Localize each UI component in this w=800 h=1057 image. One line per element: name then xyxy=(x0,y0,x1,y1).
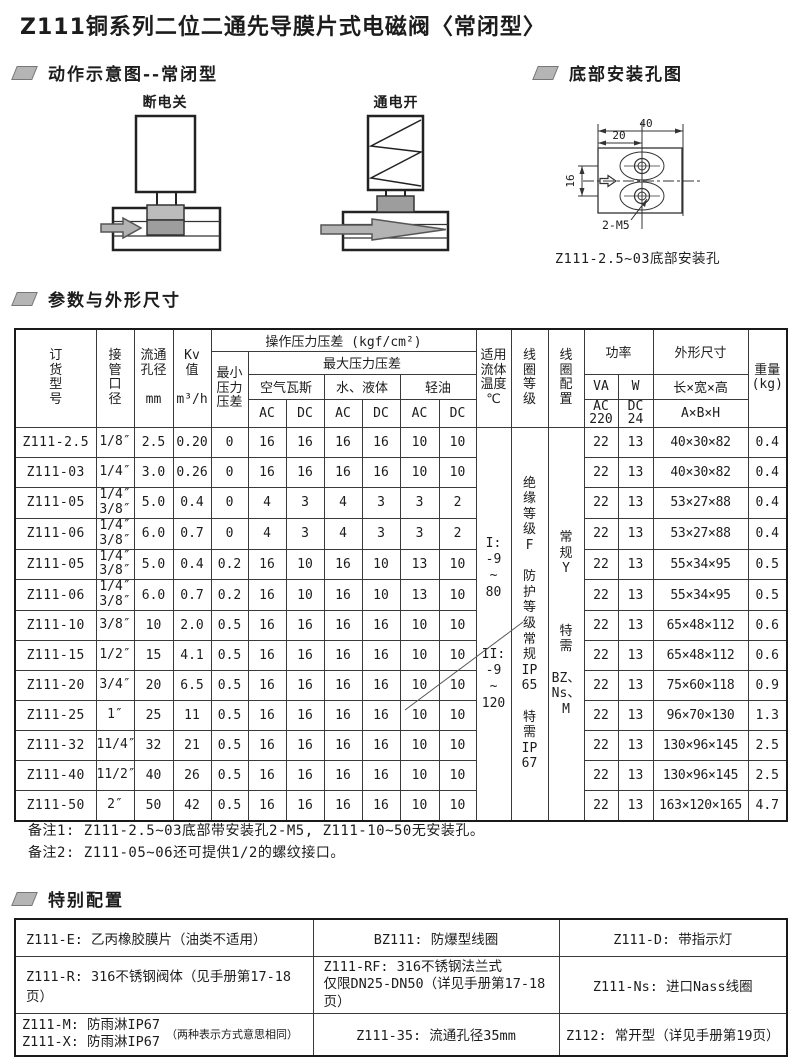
cell-oil-dc: 2 xyxy=(439,518,476,549)
col-header-ac: AC xyxy=(248,399,286,427)
section-marker-icon xyxy=(11,292,38,306)
cell-weight: 0.9 xyxy=(748,671,787,701)
special-cell-z111m-text: Z111-M: 防雨淋IP67 Z111-X: 防雨淋IP67 xyxy=(22,1017,160,1052)
cell-air-dc: 16 xyxy=(286,671,324,701)
cell-water-dc: 16 xyxy=(362,731,400,761)
cell-bore: 3.0 xyxy=(134,457,173,487)
cell-port: 1″ xyxy=(96,701,134,731)
cell-oil-dc: 10 xyxy=(439,611,476,641)
cell-oil-ac: 10 xyxy=(400,701,439,731)
cell-min-dp: 0 xyxy=(211,487,248,518)
dim-40-label: 40 xyxy=(639,117,652,130)
col-header-power: 功率 xyxy=(584,329,653,374)
cell-min-dp: 0.5 xyxy=(211,671,248,701)
cell-coil-config: 常 规 Y 特 需 BZ、 Ns、 M xyxy=(548,427,584,821)
spec-row: Z111-151/2″154.10.5161616161010221365×48… xyxy=(15,641,787,671)
coil-deenergized xyxy=(136,116,195,192)
cell-dimensions: 65×48×112 xyxy=(653,611,748,641)
cell-power-va: 22 xyxy=(584,611,618,641)
cell-model: Z111-05 xyxy=(15,487,96,518)
cell-oil-ac: 10 xyxy=(400,791,439,821)
cell-water-dc: 3 xyxy=(362,487,400,518)
cell-weight: 2.5 xyxy=(748,731,787,761)
cell-min-dp: 0 xyxy=(211,518,248,549)
cell-power-w: 13 xyxy=(618,427,653,457)
cell-oil-dc: 10 xyxy=(439,580,476,611)
cell-water-dc: 16 xyxy=(362,457,400,487)
cell-power-va: 22 xyxy=(584,549,618,580)
spec-table: 订 货 型 号 接 管 口 径 流通 孔径 mm Kv 值 m³/h 操作压力压… xyxy=(14,328,788,822)
cell-bore: 5.0 xyxy=(134,487,173,518)
section-marker-icon xyxy=(532,66,559,80)
special-row: Z111-R: 316不锈钢阀体（见手册第17-18页） Z111-RF: 31… xyxy=(15,956,787,1014)
valve-action-diagram xyxy=(90,108,460,258)
cell-bore: 50 xyxy=(134,791,173,821)
spec-row: Z111-2.51/8″2.50.200161616161010I: -9 ~ … xyxy=(15,427,787,457)
special-cell-z111d: Z111-D: 带指示灯 xyxy=(559,919,787,956)
cell-model: Z111-32 xyxy=(15,731,96,761)
cell-air-dc: 16 xyxy=(286,761,324,791)
special-cell-z11135: Z111-35: 流通孔径35mm xyxy=(313,1014,559,1056)
cell-water-dc: 3 xyxy=(362,518,400,549)
section-title: 底部安装孔图 xyxy=(569,60,683,85)
page-title: Z111铜系列二位二通先导膜片式电磁阀〈常闭型〉 xyxy=(20,9,546,41)
cell-power-va: 22 xyxy=(584,671,618,701)
cell-model: Z111-50 xyxy=(15,791,96,821)
cell-power-w: 13 xyxy=(618,731,653,761)
cell-water-dc: 16 xyxy=(362,701,400,731)
special-cell-z112: Z112: 常开型（详见手册第19页） xyxy=(559,1014,787,1056)
cell-power-w: 13 xyxy=(618,701,653,731)
cell-power-va: 22 xyxy=(584,641,618,671)
cell-model: Z111-03 xyxy=(15,457,96,487)
cell-oil-dc: 10 xyxy=(439,761,476,791)
spec-row: Z111-051/4″ 3/8″5.00.40434332221353×27×8… xyxy=(15,487,787,518)
special-cell-z111m: Z111-M: 防雨淋IP67 Z111-X: 防雨淋IP67 （两种表示方式意… xyxy=(15,1014,313,1056)
cell-model: Z111-10 xyxy=(15,611,96,641)
cell-power-w: 13 xyxy=(618,580,653,611)
col-header-min-dp: 最小 压力 压差 xyxy=(211,351,248,427)
col-header-weight: 重量 (kg) xyxy=(748,329,787,427)
cell-oil-dc: 10 xyxy=(439,701,476,731)
temp-range-2: II: -9 ~ 120 xyxy=(477,647,511,712)
cell-kv: 26 xyxy=(173,761,211,791)
section-title: 动作示意图--常闭型 xyxy=(48,60,218,85)
cell-water-ac: 16 xyxy=(324,731,362,761)
plunger-seated-top xyxy=(147,205,184,220)
cell-weight: 0.6 xyxy=(748,641,787,671)
cell-air-dc: 16 xyxy=(286,641,324,671)
cell-air-dc: 16 xyxy=(286,427,324,457)
cell-oil-ac: 3 xyxy=(400,487,439,518)
cell-water-ac: 16 xyxy=(324,791,362,821)
cell-air-dc: 16 xyxy=(286,611,324,641)
cell-port: 1/4″ 3/8″ xyxy=(96,518,134,549)
col-header-water-liquid: 水、液体 xyxy=(324,374,400,399)
special-cell-z111e: Z111-E: 乙丙橡胶膜片（油类不适用） xyxy=(15,919,313,956)
spec-row: Z111-061/4″ 3/8″6.00.70434332221353×27×8… xyxy=(15,518,787,549)
cell-water-ac: 16 xyxy=(324,549,362,580)
cell-water-ac: 16 xyxy=(324,761,362,791)
cell-kv: 0.4 xyxy=(173,549,211,580)
cell-water-ac: 4 xyxy=(324,518,362,549)
spec-row: Z111-051/4″ 3/8″5.00.40.2161016101310221… xyxy=(15,549,787,580)
cell-oil-dc: 10 xyxy=(439,791,476,821)
cell-weight: 0.4 xyxy=(748,427,787,457)
cell-oil-ac: 10 xyxy=(400,761,439,791)
cell-weight: 0.6 xyxy=(748,611,787,641)
cell-bore: 6.0 xyxy=(134,580,173,611)
col-header-dc24: DC 24 xyxy=(618,399,653,427)
cell-min-dp: 0 xyxy=(211,427,248,457)
cell-dimensions: 163×120×165 xyxy=(653,791,748,821)
cell-power-w: 13 xyxy=(618,549,653,580)
col-header-model: 订 货 型 号 xyxy=(15,329,96,427)
cell-dimensions: 55×34×95 xyxy=(653,580,748,611)
cell-min-dp: 0.2 xyxy=(211,549,248,580)
cell-dimensions: 96×70×130 xyxy=(653,701,748,731)
cell-air-ac: 16 xyxy=(248,671,286,701)
spec-row: Z111-4011/2″40260.51616161610102213130×9… xyxy=(15,761,787,791)
cell-power-va: 22 xyxy=(584,761,618,791)
col-header-kv: Kv 值 m³/h xyxy=(173,329,211,427)
cell-kv: 0.7 xyxy=(173,580,211,611)
cell-air-ac: 16 xyxy=(248,611,286,641)
cell-power-va: 22 xyxy=(584,701,618,731)
cell-air-ac: 16 xyxy=(248,580,286,611)
cell-dimensions: 130×96×145 xyxy=(653,731,748,761)
cell-kv: 6.5 xyxy=(173,671,211,701)
thread-label: 2-M5 xyxy=(602,218,630,232)
cell-air-ac: 16 xyxy=(248,731,286,761)
cell-water-dc: 16 xyxy=(362,791,400,821)
temp-range-1: I: -9 ~ 80 xyxy=(477,536,511,601)
col-header-va: VA xyxy=(584,374,618,399)
cell-model: Z111-05 xyxy=(15,549,96,580)
cell-power-va: 22 xyxy=(584,731,618,761)
cell-water-ac: 16 xyxy=(324,671,362,701)
cell-weight: 0.4 xyxy=(748,518,787,549)
cell-oil-dc: 10 xyxy=(439,457,476,487)
special-cell-z111rf: Z111-RF: 316不锈钢法兰式 仅限DN25-DN50（详见手册第17-1… xyxy=(313,956,559,1014)
special-cell-z111r: Z111-R: 316不锈钢阀体（见手册第17-18页） xyxy=(15,956,313,1014)
cell-port: 1/8″ xyxy=(96,427,134,457)
cell-port: 1/2″ xyxy=(96,641,134,671)
cell-oil-ac: 3 xyxy=(400,518,439,549)
cell-weight: 1.3 xyxy=(748,701,787,731)
cell-dimensions: 40×30×82 xyxy=(653,457,748,487)
spec-row: Z111-251″25110.5161616161010221396×70×13… xyxy=(15,701,787,731)
cell-water-dc: 16 xyxy=(362,641,400,671)
cell-port: 1/4″ 3/8″ xyxy=(96,487,134,518)
cell-power-va: 22 xyxy=(584,457,618,487)
cell-air-dc: 16 xyxy=(286,701,324,731)
cell-water-dc: 16 xyxy=(362,611,400,641)
cell-bore: 40 xyxy=(134,761,173,791)
cell-air-dc: 16 xyxy=(286,791,324,821)
note-1: 备注1: Z111-2.5~03底部带安装孔2-M5, Z111-10~50无安… xyxy=(28,820,484,840)
cell-model: Z111-06 xyxy=(15,518,96,549)
cell-oil-ac: 10 xyxy=(400,427,439,457)
col-header-abh: A×B×H xyxy=(653,399,748,427)
cell-kv: 0.20 xyxy=(173,427,211,457)
cell-model: Z111-06 xyxy=(15,580,96,611)
cell-kv: 11 xyxy=(173,701,211,731)
cell-water-dc: 10 xyxy=(362,580,400,611)
col-header-port: 接 管 口 径 xyxy=(96,329,134,427)
cell-port: 11/2″ xyxy=(96,761,134,791)
cell-min-dp: 0.5 xyxy=(211,791,248,821)
cell-air-dc: 10 xyxy=(286,549,324,580)
cell-power-va: 22 xyxy=(584,427,618,457)
cell-water-dc: 16 xyxy=(362,671,400,701)
cell-min-dp: 0.5 xyxy=(211,761,248,791)
col-header-coil-config: 线 圈 配 置 xyxy=(548,329,584,427)
cell-port: 3/4″ xyxy=(96,671,134,701)
cell-model: Z111-15 xyxy=(15,641,96,671)
mounting-caption: Z111-2.5~03底部安装孔 xyxy=(555,247,720,267)
cell-oil-dc: 10 xyxy=(439,427,476,457)
cell-oil-ac: 13 xyxy=(400,549,439,580)
cell-oil-dc: 10 xyxy=(439,549,476,580)
cell-kv: 4.1 xyxy=(173,641,211,671)
spec-row: Z111-203/4″206.50.5161616161010221375×60… xyxy=(15,671,787,701)
cell-water-dc: 10 xyxy=(362,549,400,580)
section-title: 参数与外形尺寸 xyxy=(48,286,181,311)
cell-air-dc: 3 xyxy=(286,487,324,518)
cell-dimensions: 130×96×145 xyxy=(653,761,748,791)
cell-air-ac: 16 xyxy=(248,701,286,731)
col-header-bore: 流通 孔径 mm xyxy=(134,329,173,427)
col-header-dc: DC xyxy=(286,399,324,427)
col-header-w: W xyxy=(618,374,653,399)
cell-bore: 2.5 xyxy=(134,427,173,457)
special-config-container: Z111-E: 乙丙橡胶膜片（油类不适用） BZ111: 防爆型线圈 Z111-… xyxy=(14,918,786,1057)
cell-oil-ac: 10 xyxy=(400,671,439,701)
spec-row: Z111-103/8″102.00.5161616161010221365×48… xyxy=(15,611,787,641)
cell-air-ac: 4 xyxy=(248,487,286,518)
cell-water-ac: 16 xyxy=(324,701,362,731)
cell-port: 3/8″ xyxy=(96,611,134,641)
cell-weight: 0.5 xyxy=(748,549,787,580)
cell-water-ac: 16 xyxy=(324,580,362,611)
cell-weight: 2.5 xyxy=(748,761,787,791)
cell-bore: 10 xyxy=(134,611,173,641)
cell-air-ac: 16 xyxy=(248,641,286,671)
cell-min-dp: 0.2 xyxy=(211,580,248,611)
cell-model: Z111-2.5 xyxy=(15,427,96,457)
cell-kv: 0.26 xyxy=(173,457,211,487)
cell-oil-dc: 10 xyxy=(439,641,476,671)
cell-water-ac: 16 xyxy=(324,611,362,641)
cell-power-w: 13 xyxy=(618,611,653,641)
cell-power-va: 22 xyxy=(584,580,618,611)
cell-coil-grade: 绝 缘 等 级 F 防 护 等 级 常 规 IP 65 特 需 IP 67 xyxy=(511,427,548,821)
col-header-max-dp: 最大压力压差 xyxy=(248,351,476,374)
cell-oil-ac: 10 xyxy=(400,731,439,761)
cell-fluid-temp-ranges: I: -9 ~ 80II: -9 ~ 120 xyxy=(476,427,511,821)
cell-air-dc: 10 xyxy=(286,580,324,611)
special-row: Z111-E: 乙丙橡胶膜片（油类不适用） BZ111: 防爆型线圈 Z111-… xyxy=(15,919,787,956)
cell-power-va: 22 xyxy=(584,791,618,821)
col-header-light-oil: 轻油 xyxy=(400,374,476,399)
cell-air-dc: 16 xyxy=(286,457,324,487)
section-title: 特别配置 xyxy=(48,886,124,911)
cell-bore: 25 xyxy=(134,701,173,731)
cell-air-ac: 16 xyxy=(248,427,286,457)
cell-water-ac: 16 xyxy=(324,457,362,487)
cell-bore: 15 xyxy=(134,641,173,671)
cell-port: 1/4″ xyxy=(96,457,134,487)
cell-dimensions: 55×34×95 xyxy=(653,549,748,580)
dim-16-label: 16 xyxy=(564,174,577,187)
cell-air-dc: 3 xyxy=(286,518,324,549)
spec-row: Z111-3211/4″32210.51616161610102213130×9… xyxy=(15,731,787,761)
section-marker-icon xyxy=(11,66,38,80)
cell-kv: 0.7 xyxy=(173,518,211,549)
datasheet-page: { "page_title": "Z111铜系列二位二通先导膜片式电磁阀〈常闭型… xyxy=(0,0,800,1044)
cell-port: 1/4″ 3/8″ xyxy=(96,549,134,580)
spec-row: Z111-502″50420.51616161610102213163×120×… xyxy=(15,791,787,821)
section-heading-mounting: 底部安装孔图 xyxy=(535,60,683,85)
cell-water-ac: 16 xyxy=(324,641,362,671)
cell-air-ac: 16 xyxy=(248,791,286,821)
cell-power-w: 13 xyxy=(618,518,653,549)
special-row: Z111-M: 防雨淋IP67 Z111-X: 防雨淋IP67 （两种表示方式意… xyxy=(15,1014,787,1056)
mounting-hole-drawing: 40 20 16 2-M5 xyxy=(558,112,713,244)
cell-bore: 5.0 xyxy=(134,549,173,580)
cell-port: 2″ xyxy=(96,791,134,821)
cell-min-dp: 0.5 xyxy=(211,611,248,641)
note-2: 备注2: Z111-05~06还可提供1/2的螺纹接口。 xyxy=(28,842,345,862)
cell-model: Z111-20 xyxy=(15,671,96,701)
cell-kv: 42 xyxy=(173,791,211,821)
section-heading-special: 特别配置 xyxy=(14,886,124,911)
col-header-ac: AC xyxy=(400,399,439,427)
col-header-fluid-temp: 适用 流体 温度 ℃ xyxy=(476,329,511,427)
cell-port: 1/4″ 3/8″ xyxy=(96,580,134,611)
plunger-lifted xyxy=(377,196,414,212)
cell-dimensions: 75×60×118 xyxy=(653,671,748,701)
special-config-table: Z111-E: 乙丙橡胶膜片（油类不适用） BZ111: 防爆型线圈 Z111-… xyxy=(14,918,788,1057)
cell-water-ac: 16 xyxy=(324,427,362,457)
plunger-seated xyxy=(147,220,184,235)
special-cell-bz111: BZ111: 防爆型线圈 xyxy=(313,919,559,956)
cell-air-ac: 4 xyxy=(248,518,286,549)
cell-model: Z111-25 xyxy=(15,701,96,731)
cell-air-ac: 16 xyxy=(248,549,286,580)
cell-power-w: 13 xyxy=(618,457,653,487)
dim-20-label: 20 xyxy=(612,129,625,142)
cell-oil-ac: 10 xyxy=(400,457,439,487)
spec-table-container: 订 货 型 号 接 管 口 径 流通 孔径 mm Kv 值 m³/h 操作压力压… xyxy=(14,328,786,822)
cell-water-dc: 16 xyxy=(362,427,400,457)
col-header-coil-grade: 线 圈 等 级 xyxy=(511,329,548,427)
col-header-air-gas: 空气瓦斯 xyxy=(248,374,324,399)
cell-bore: 6.0 xyxy=(134,518,173,549)
cell-water-dc: 16 xyxy=(362,761,400,791)
col-header-lwh: 长×宽×高 xyxy=(653,374,748,399)
col-header-dimensions: 外形尺寸 xyxy=(653,329,748,374)
cell-kv: 2.0 xyxy=(173,611,211,641)
cell-dimensions: 65×48×112 xyxy=(653,641,748,671)
cell-min-dp: 0 xyxy=(211,457,248,487)
cell-power-w: 13 xyxy=(618,671,653,701)
cell-min-dp: 0.5 xyxy=(211,701,248,731)
cell-power-w: 13 xyxy=(618,791,653,821)
cell-air-dc: 16 xyxy=(286,731,324,761)
col-header-ac: AC xyxy=(324,399,362,427)
special-cell-z111ns: Z111-Ns: 进口Nass线圈 xyxy=(559,956,787,1014)
cell-bore: 20 xyxy=(134,671,173,701)
cell-dimensions: 53×27×88 xyxy=(653,487,748,518)
cell-weight: 4.7 xyxy=(748,791,787,821)
cell-bore: 32 xyxy=(134,731,173,761)
col-header-ac220: AC 220 xyxy=(584,399,618,427)
cell-oil-dc: 10 xyxy=(439,671,476,701)
cell-kv: 0.4 xyxy=(173,487,211,518)
cell-dimensions: 40×30×82 xyxy=(653,427,748,457)
cell-air-ac: 16 xyxy=(248,761,286,791)
cell-oil-dc: 10 xyxy=(439,731,476,761)
cell-port: 11/4″ xyxy=(96,731,134,761)
cell-weight: 0.5 xyxy=(748,580,787,611)
cell-power-va: 22 xyxy=(584,518,618,549)
col-header-operating-dp: 操作压力压差 (kgf/cm²) xyxy=(211,329,476,351)
cell-min-dp: 0.5 xyxy=(211,731,248,761)
col-header-dc: DC xyxy=(439,399,476,427)
cell-oil-ac: 10 xyxy=(400,641,439,671)
cell-oil-ac: 10 xyxy=(400,611,439,641)
cell-weight: 0.4 xyxy=(748,457,787,487)
cell-power-w: 13 xyxy=(618,761,653,791)
cell-weight: 0.4 xyxy=(748,487,787,518)
section-heading-action: 动作示意图--常闭型 xyxy=(14,60,218,85)
section-heading-params: 参数与外形尺寸 xyxy=(14,286,181,311)
cell-power-w: 13 xyxy=(618,641,653,671)
spec-row: Z111-031/4″3.00.260161616161010221340×30… xyxy=(15,457,787,487)
cell-oil-ac: 13 xyxy=(400,580,439,611)
cell-air-ac: 16 xyxy=(248,457,286,487)
col-header-dc: DC xyxy=(362,399,400,427)
cell-kv: 21 xyxy=(173,731,211,761)
cell-min-dp: 0.5 xyxy=(211,641,248,671)
special-cell-z111m-note: （两种表示方式意思相同） xyxy=(166,1026,298,1042)
cell-power-w: 13 xyxy=(618,487,653,518)
cell-dimensions: 53×27×88 xyxy=(653,518,748,549)
spec-row: Z111-061/4″ 3/8″6.00.70.2161016101310221… xyxy=(15,580,787,611)
cell-oil-dc: 2 xyxy=(439,487,476,518)
section-marker-icon xyxy=(11,892,38,906)
cell-power-va: 22 xyxy=(584,487,618,518)
cell-model: Z111-40 xyxy=(15,761,96,791)
cell-water-ac: 4 xyxy=(324,487,362,518)
